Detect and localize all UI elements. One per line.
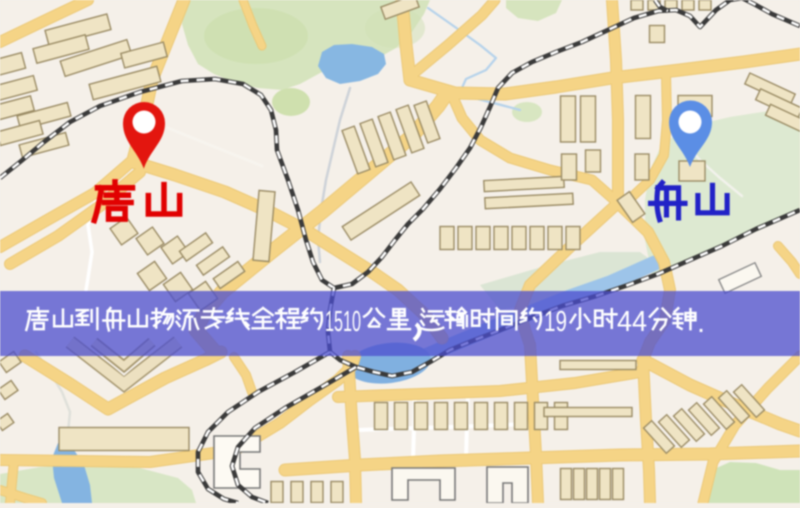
svg-text:44: 44: [617, 306, 647, 338]
svg-text:.: .: [697, 307, 705, 339]
svg-text:1510: 1510: [325, 306, 361, 338]
svg-text:19: 19: [544, 306, 567, 338]
